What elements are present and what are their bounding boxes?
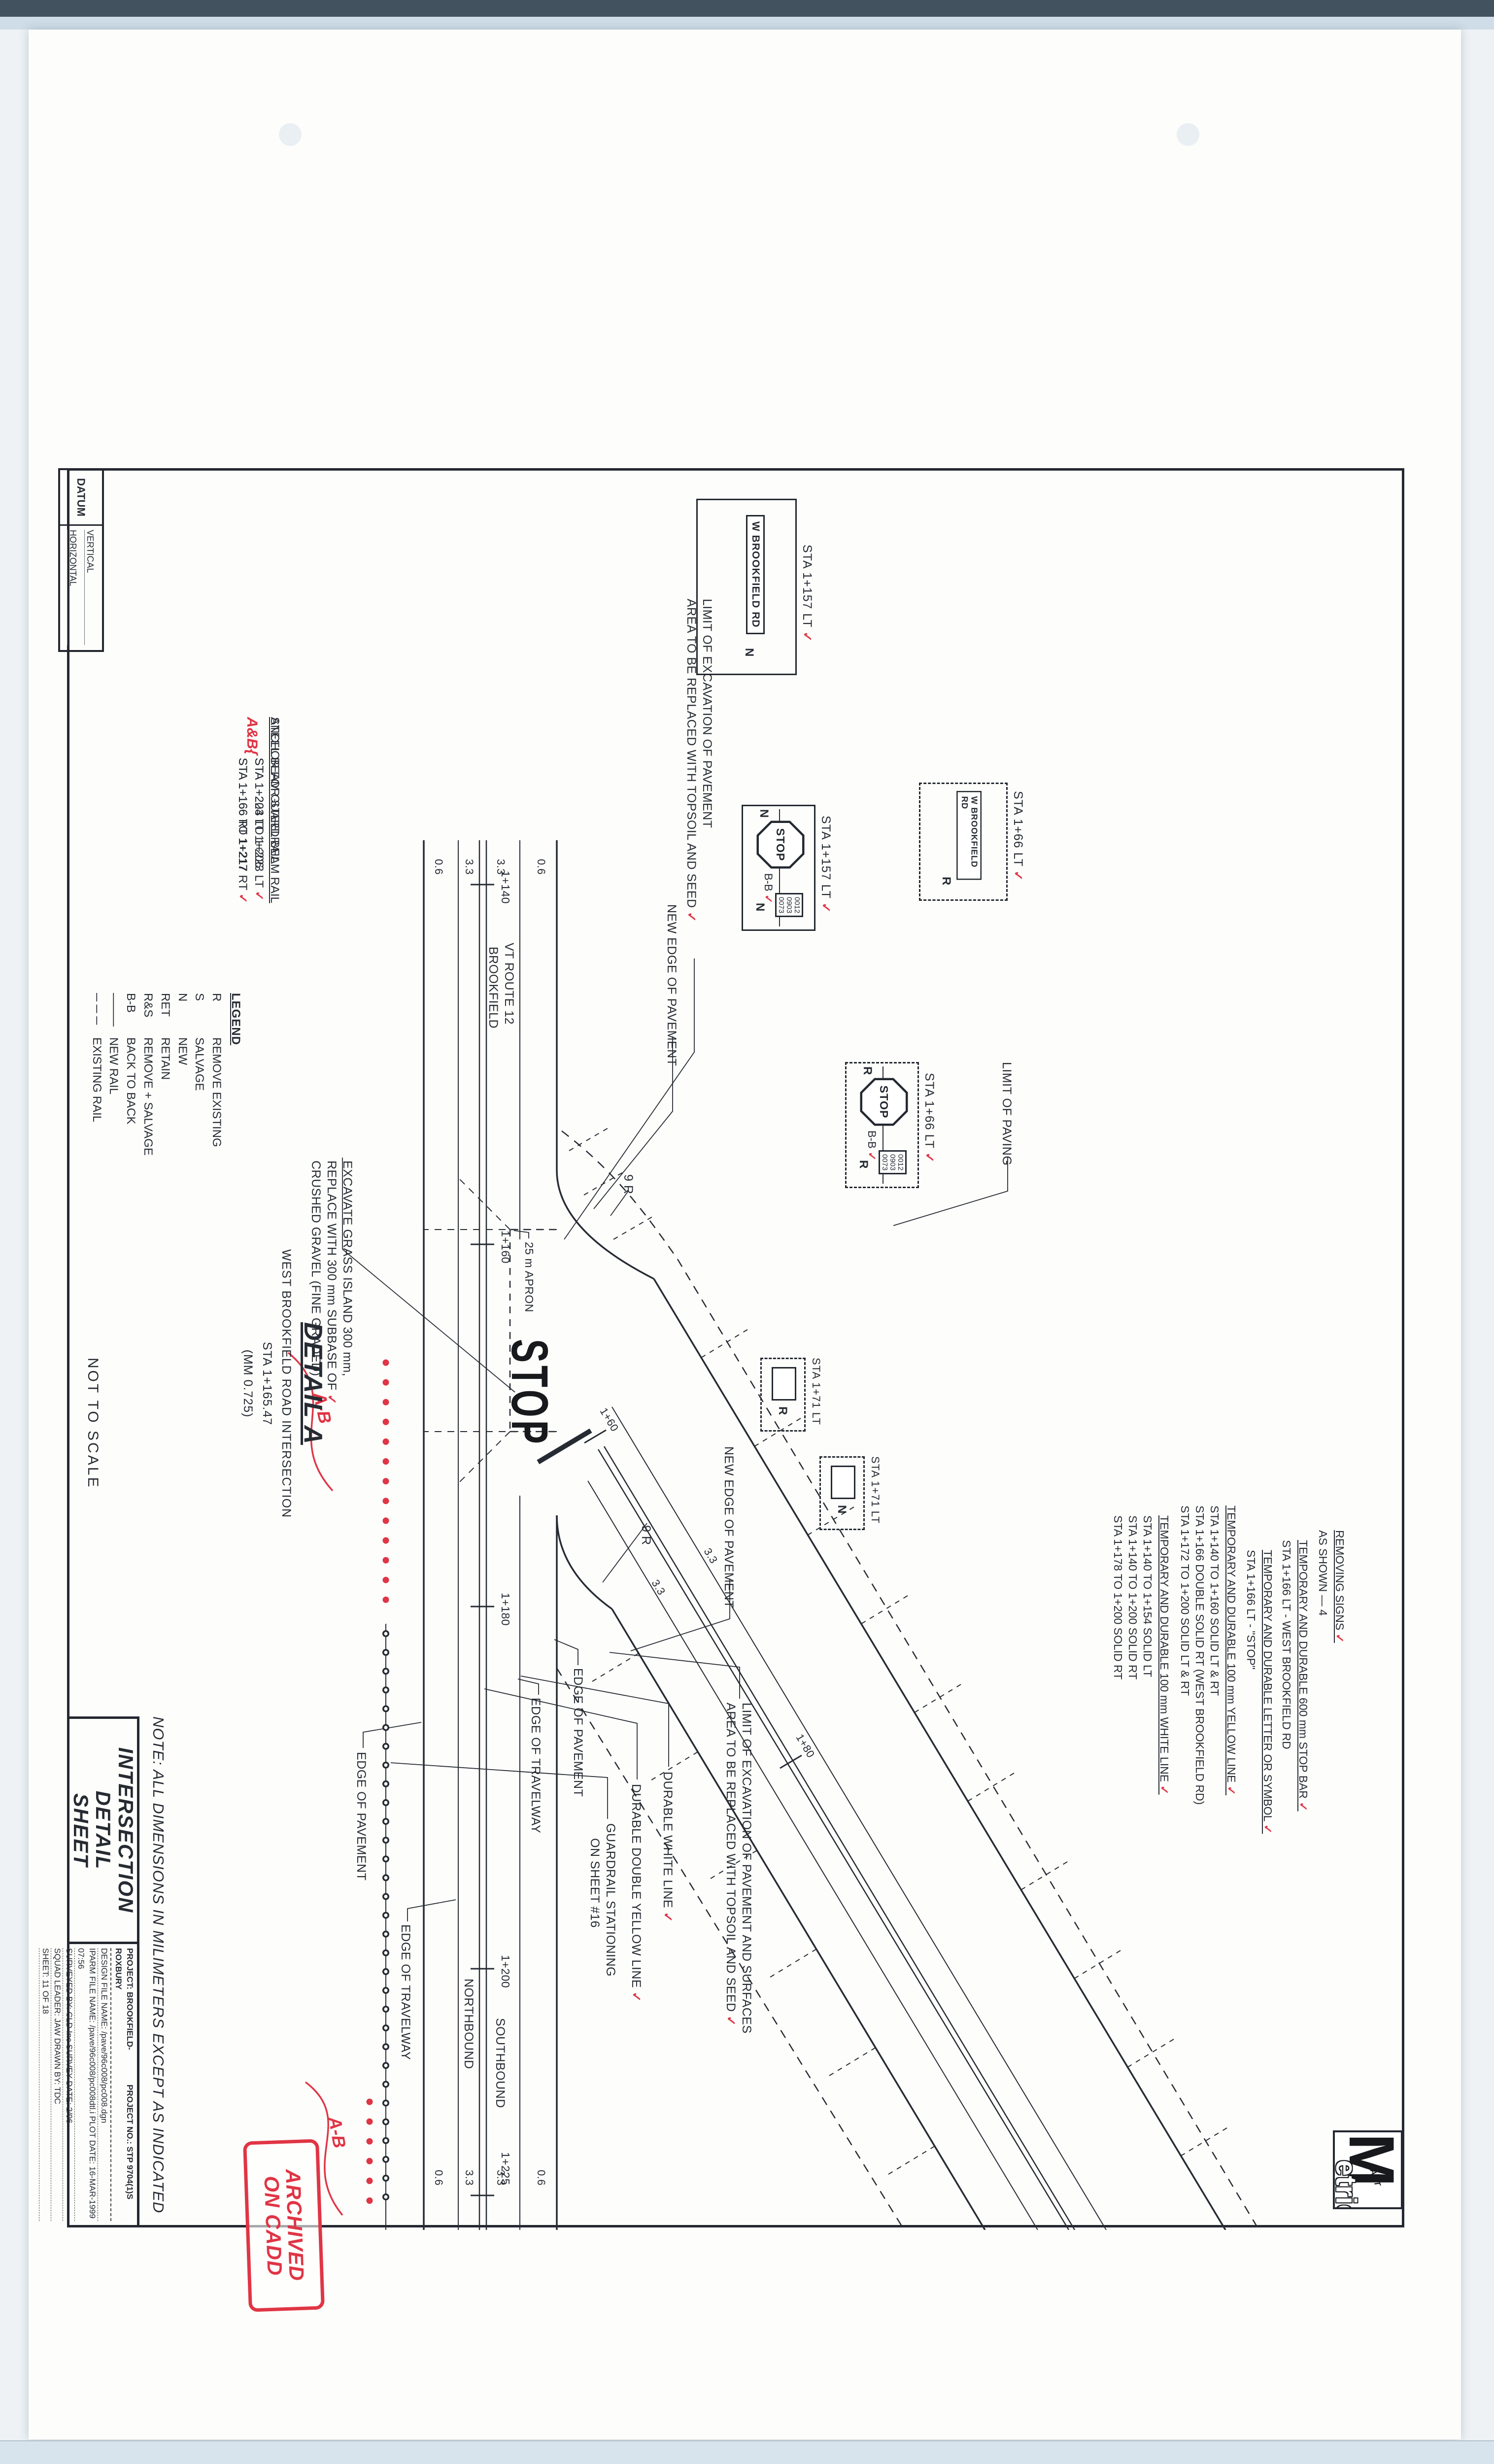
title-block-fields: PROJECT: BROOKFIELD-ROXBURY PROJECT NO.:… (67, 1944, 139, 2227)
legend-item: R&SREMOVE + SALVAGE (139, 993, 156, 1156)
drawing-label: SOUTHBOUND (493, 2018, 507, 2108)
sign-status-remove: R (860, 1066, 874, 1075)
sign-caption: STA 1+71 LT (810, 1358, 822, 1425)
detail-a-heading: DETAIL A (298, 1249, 328, 1518)
scanned-plan-sheet: STOP A-B A-B LIMIT OF EXCAVATION OF PAVE… (0, 0, 1494, 2464)
project-row: PROJECT: BROOKFIELD-ROXBURY PROJECT NO.:… (110, 1948, 135, 2221)
sheet-title-line: INTERSECTION (114, 1747, 136, 1914)
drawing-label: GUARDRAIL STATIONING (603, 1823, 617, 1977)
sign-status-remove: R (939, 877, 953, 885)
drawing-label: EDGE OF TRAVELWAY (528, 1698, 543, 1833)
title-block-field: SURVEYED BY: CLD Inc SURVEY DATE: 2/96 (63, 1948, 74, 2221)
drawing-label: 9 R (639, 1525, 653, 1545)
street-name-sign: W BROOKFIELD RD (746, 515, 765, 634)
drawing-label: 0.6 (535, 2170, 547, 2186)
sign-detail-box-removed-stop-sign: STOP R B-B ✓ 001209030073 R (845, 1062, 919, 1188)
metric-etric-text: etric (1333, 2160, 1362, 2209)
red-check-icon: ✓ (1011, 870, 1025, 881)
drawing-label: 0.6 (433, 2170, 445, 2186)
detail-a-mile-marker: (MM 0.725) (240, 1249, 255, 1518)
marking-table: TEMPORARY AND DURABLE 100 mm YELLOW LINE… (1177, 1506, 1238, 1805)
drawing-label: 0.6 (535, 859, 547, 875)
sign-caption-text: STA 1+71 LT (869, 1456, 882, 1524)
sign-detail-box-new-stop-sign: STOP N B-B ✓ 001209030073 N (742, 805, 815, 931)
drawing-label: BROOKFIELD (486, 947, 500, 1028)
marking-table: TEMPORARY AND DURABLE 100 mm WHITE LINE … (1110, 1515, 1171, 1795)
red-check-icon: ✓ (819, 902, 833, 913)
sign-caption-text: STA 1+157 LT (800, 545, 814, 627)
drawing-label: 0.6 (433, 859, 445, 875)
legend-items: RREMOVE EXISTINGSSALVAGENNEWRETRETAINR&S… (88, 993, 225, 1156)
title-block-field: IPARM FILE NAME: /pave/96c008/pc008dtl.i… (74, 1948, 98, 2221)
drawing-label: DURABLE DOUBLE YELLOW LINE ✓ (629, 1784, 643, 2002)
sheet-title-line: DETAIL (92, 1791, 114, 1870)
detail-a-title: DETAIL A WEST BROOKFIELD ROAD INTERSECTI… (240, 1249, 328, 1518)
sign-caption: STA 1+66 LT ✓ (1011, 791, 1025, 881)
legend-item: NNEW (173, 993, 191, 1156)
sign-panel (772, 1367, 796, 1401)
datum-title: DATUM (60, 470, 102, 526)
legend-item: ─ ─ ─EXISTING RAIL (88, 993, 105, 1156)
drawing-label: LIMIT OF EXCAVATION OF PAVEMENT AND SURF… (739, 1703, 753, 2034)
file-fields: DESIGN FILE NAME: /pave/96c008/pc008.dgn… (39, 1948, 110, 2221)
sign-caption-text: STA 1+71 LT (810, 1358, 822, 1425)
drawing-label: 3.3 (463, 859, 475, 875)
sign-panel (831, 1466, 855, 1499)
drawing-label: VT ROUTE 12 (502, 943, 516, 1025)
stop-pavement-marking: STOP (500, 1339, 558, 1447)
drawing-label: AREA TO BE REPLACED WITH TOPSOIL AND SEE… (723, 1703, 738, 2026)
stop-sign-icon: STOP (860, 1078, 908, 1126)
sign-status-new: N (757, 809, 771, 818)
drawing-label: EDGE OF PAVEMENT (354, 1752, 368, 1881)
marking-table: REMOVING SIGNS ✓AS SHOWN — 4 (1315, 1530, 1347, 1643)
sign-caption-text: STA 1+157 LT (819, 816, 833, 898)
sign-status-new: N (835, 1505, 849, 1513)
street-name-sign: W BROOKFIELD RD (956, 791, 982, 880)
datum-box: DATUM VERTICALHORIZONTAL (58, 468, 104, 652)
project-name: PROJECT: BROOKFIELD-ROXBURY (112, 1948, 135, 2085)
back-to-back-label: B-B ✓ (762, 873, 775, 903)
title-block-field: DESIGN FILE NAME: /pave/96c008/pc008.dgn (98, 1948, 109, 2221)
drawing-label: NEW EDGE OF PAVEMENT (721, 1446, 736, 1608)
scan-edge-strip-bottom (0, 2440, 1494, 2464)
sign-status-remove: R (856, 1160, 870, 1168)
stop-sign-icon: STOP (756, 821, 804, 868)
drawing-label: 9 R (621, 1174, 635, 1194)
sign-status-remove: R (776, 1406, 789, 1415)
route-marker-panel: 001209030073 (775, 893, 803, 917)
sign-caption: STA 1+157 LT ✓ (800, 545, 815, 642)
datum-rows: VERTICALHORIZONTAL (60, 526, 102, 650)
sign-caption-text: STA 1+66 LT (922, 1073, 936, 1148)
sheet-title-block: INTERSECTIONDETAILSHEET (67, 1716, 139, 1944)
drawing-label: 25 m APRON (523, 1242, 536, 1312)
drawing-label: EDGE OF PAVEMENT (571, 1668, 585, 1797)
drawing-label: 1+160 (499, 1231, 512, 1264)
detail-a-subtitle: WEST BROOKFIELD ROAD INTERSECTION (279, 1249, 293, 1518)
scan-edge-strip-top-light (0, 17, 1494, 30)
drawing-sheet-frame: STOP A-B A-B LIMIT OF EXCAVATION OF PAVE… (67, 468, 1404, 2227)
dimensions-note: NOTE: ALL DIMENSIONS IN MILIMETERS EXCEP… (149, 1716, 167, 2213)
sheet-title-line: SHEET (69, 1793, 92, 1867)
drawing-label: LIMIT OF PAVING (999, 1062, 1014, 1165)
sign-detail-box-mini: R (760, 1358, 806, 1432)
sign-caption-text: STA 1+66 LT (1011, 791, 1025, 866)
drawing-label: NEW EDGE OF PAVEMENT (664, 904, 679, 1066)
title-block-field: SQUAD LEADER: JAW DRAWN BY: TDC (51, 1948, 63, 2221)
drawing-label: EDGE OF TRAVELWAY (398, 1924, 412, 2060)
legend-title: LEGEND (227, 993, 244, 1156)
title-block-field: SHEET: 11 OF 18 (39, 1948, 51, 2221)
datum-row: HORIZONTAL (67, 530, 78, 645)
drawing-label: NORTHBOUND (461, 1979, 475, 2069)
drawing-label: 1+140 (499, 871, 512, 904)
legend: LEGEND RREMOVE EXISTINGSSALVAGENNEWRETRE… (88, 993, 244, 1156)
drawing-label: DURABLE WHITE LINE ✓ (660, 1772, 675, 1922)
sign-status-new: N (742, 648, 756, 656)
legend-item: B-BBACK TO BACK (122, 993, 139, 1156)
legend-item: RREMOVE EXISTING (207, 993, 225, 1156)
sign-caption: STA 1+157 LT ✓ (818, 816, 833, 913)
not-to-scale-label: NOT TO SCALE (84, 1358, 102, 1489)
detail-a-station: STA 1+165.47 (260, 1249, 274, 1518)
red-check-icon: ✓ (922, 1152, 936, 1163)
drawing-label: 1+200 (499, 1955, 512, 1988)
sign-detail-box-new-street-sign: W BROOKFIELD RD N (696, 499, 797, 675)
marking-table: TEMPORARY AND DURABLE 600 mm STOP BAR ✓S… (1279, 1540, 1310, 1812)
drawing-label: 1+180 (499, 1593, 512, 1626)
sign-caption: STA 1+66 LT ✓ (922, 1073, 937, 1163)
marking-table: TEMPORARY AND DURABLE LETTER OR SYMBOL ✓… (1243, 1550, 1275, 1834)
legend-item: RETRETAIN (156, 993, 173, 1156)
scan-edge-strip-top (0, 0, 1494, 17)
sign-status-new: N (753, 903, 767, 911)
sign-caption: STA 1+71 LT (869, 1456, 882, 1524)
legend-item: SSALVAGE (191, 993, 208, 1156)
route-marker-panel: 001209030073 (879, 1150, 907, 1174)
archived-on-cadd-stamp: ARCHIVED ON CADD (243, 2139, 325, 2312)
drawing-label: 3.3 (495, 859, 507, 875)
drawing-label: 3.3 (495, 2170, 507, 2186)
project-number: PROJECT NO.: STP 9704(1)S (112, 2085, 135, 2221)
drawing-label: ON SHEET #16 (587, 1838, 602, 1928)
datum-row: VERTICAL (84, 530, 95, 645)
guardrail-note: ANCHOR FOR STEEL BEAM RAILA&B{STA 1+223 … (235, 717, 282, 903)
sign-detail-box-removed-street-sign: W BROOKFIELD RD R (919, 783, 1008, 901)
binder-hole-icon (279, 123, 302, 146)
vaot-metric-logo: M VAOT etric (1333, 2130, 1403, 2209)
stamp-line2: ON CADD (260, 2176, 285, 2276)
drawing-label: EXCAVATE GRASS ISLAND 300 mm, (340, 1161, 354, 1376)
sign-detail-box-mini: N (819, 1456, 865, 1530)
legend-item: ────NEW RAIL (105, 993, 122, 1156)
drawing-label: 3.3 (463, 2170, 475, 2186)
back-to-back-label: B-B ✓ (865, 1130, 878, 1161)
red-check-icon: ✓ (800, 631, 814, 642)
binder-hole-icon (1177, 123, 1199, 146)
